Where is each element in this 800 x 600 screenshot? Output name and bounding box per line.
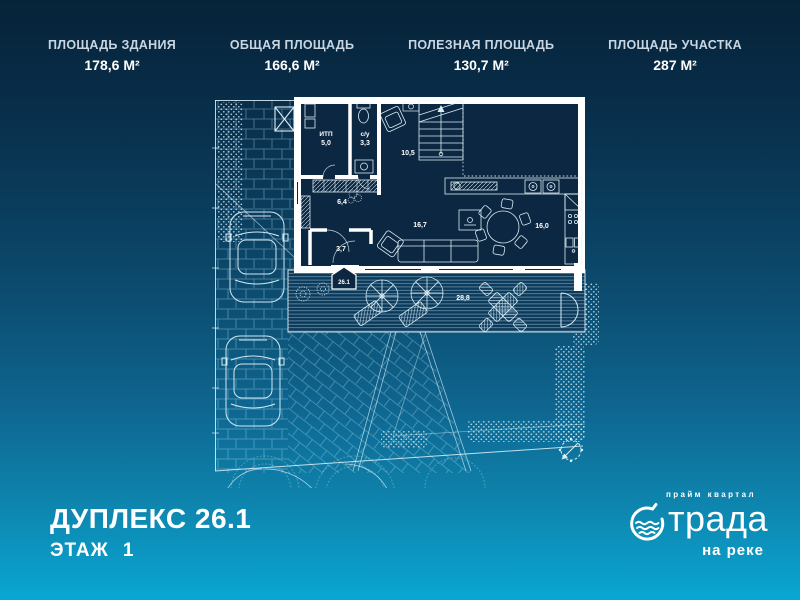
stat-usable-area: ПОЛЕЗНАЯ ПЛОЩАДЬ 130,7 М²: [408, 38, 554, 73]
logo-wordmark: трада: [626, 499, 768, 545]
room-area-corridor: 6,4: [337, 199, 347, 206]
unit-title-block: ДУПЛЕКС 26.1 ЭТАЖ1: [50, 503, 251, 562]
floor-label: ЭТАЖ: [50, 540, 109, 561]
floor-plan-drawing: 28,8: [205, 88, 645, 488]
stat-total-area: ОБЩАЯ ПЛОЩАДЬ 166,6 М²: [230, 38, 354, 73]
stat-value: 130,7 М²: [454, 57, 509, 73]
brochure-page: ПЛОЩАДЬ ЗДАНИЯ 178,6 М² ОБЩАЯ ПЛОЩАДЬ 16…: [0, 0, 800, 600]
building: 26.1 ИТП 5,0 с/у 3,3 10,5 6,4 3,7 16,7 1…: [275, 97, 585, 291]
logo-name: трада: [668, 499, 768, 539]
hedge-bottom-small: [381, 430, 427, 448]
stat-value: 178,6 М²: [84, 57, 139, 73]
stat-value: 166,6 М²: [264, 57, 319, 73]
brand-logo: прайм квартал трада на реке: [626, 490, 768, 559]
stat-value: 287 М²: [653, 57, 697, 73]
room-area-kitchen: 16,0: [535, 223, 549, 230]
room-area-bathroom: 3,3: [360, 140, 370, 147]
floor-line: ЭТАЖ1: [50, 540, 251, 562]
stat-label: ПЛОЩАДЬ ЗДАНИЯ: [48, 38, 176, 52]
stat-label: ПЛОЩАДЬ УЧАСТКА: [608, 38, 742, 52]
room-area-hall: 10,5: [401, 150, 415, 157]
hedge-left: [217, 102, 243, 242]
room-area-itp: 5,0: [321, 140, 331, 147]
wave-cup-icon: [626, 499, 668, 545]
entrance-tag: 26.1: [331, 265, 359, 289]
stat-label: ПОЛЕЗНАЯ ПЛОЩАДЬ: [408, 38, 554, 52]
hedge-bottom: [467, 420, 585, 442]
entrance-tag-label: 26.1: [338, 280, 350, 286]
room-name-bathroom: с/у: [360, 131, 369, 138]
shelves: [301, 196, 310, 228]
room-area-storage: 3,7: [336, 246, 346, 253]
stat-building-area: ПЛОЩАДЬ ЗДАНИЯ 178,6 М²: [48, 38, 176, 73]
room-label-terrace: 28,8: [456, 295, 470, 302]
stat-label: ОБЩАЯ ПЛОЩАДЬ: [230, 38, 354, 52]
floor-plan: 28,8: [205, 88, 645, 488]
room-area-living: 16,7: [413, 222, 427, 229]
room-name-itp: ИТП: [319, 131, 333, 138]
stat-plot-area: ПЛОЩАДЬ УЧАСТКА 287 М²: [608, 38, 742, 73]
floor-number: 1: [123, 540, 135, 561]
area-stats: ПЛОЩАДЬ ЗДАНИЯ 178,6 М² ОБЩАЯ ПЛОЩАДЬ 16…: [48, 38, 742, 73]
page-title: ДУПЛЕКС 26.1: [50, 503, 251, 535]
